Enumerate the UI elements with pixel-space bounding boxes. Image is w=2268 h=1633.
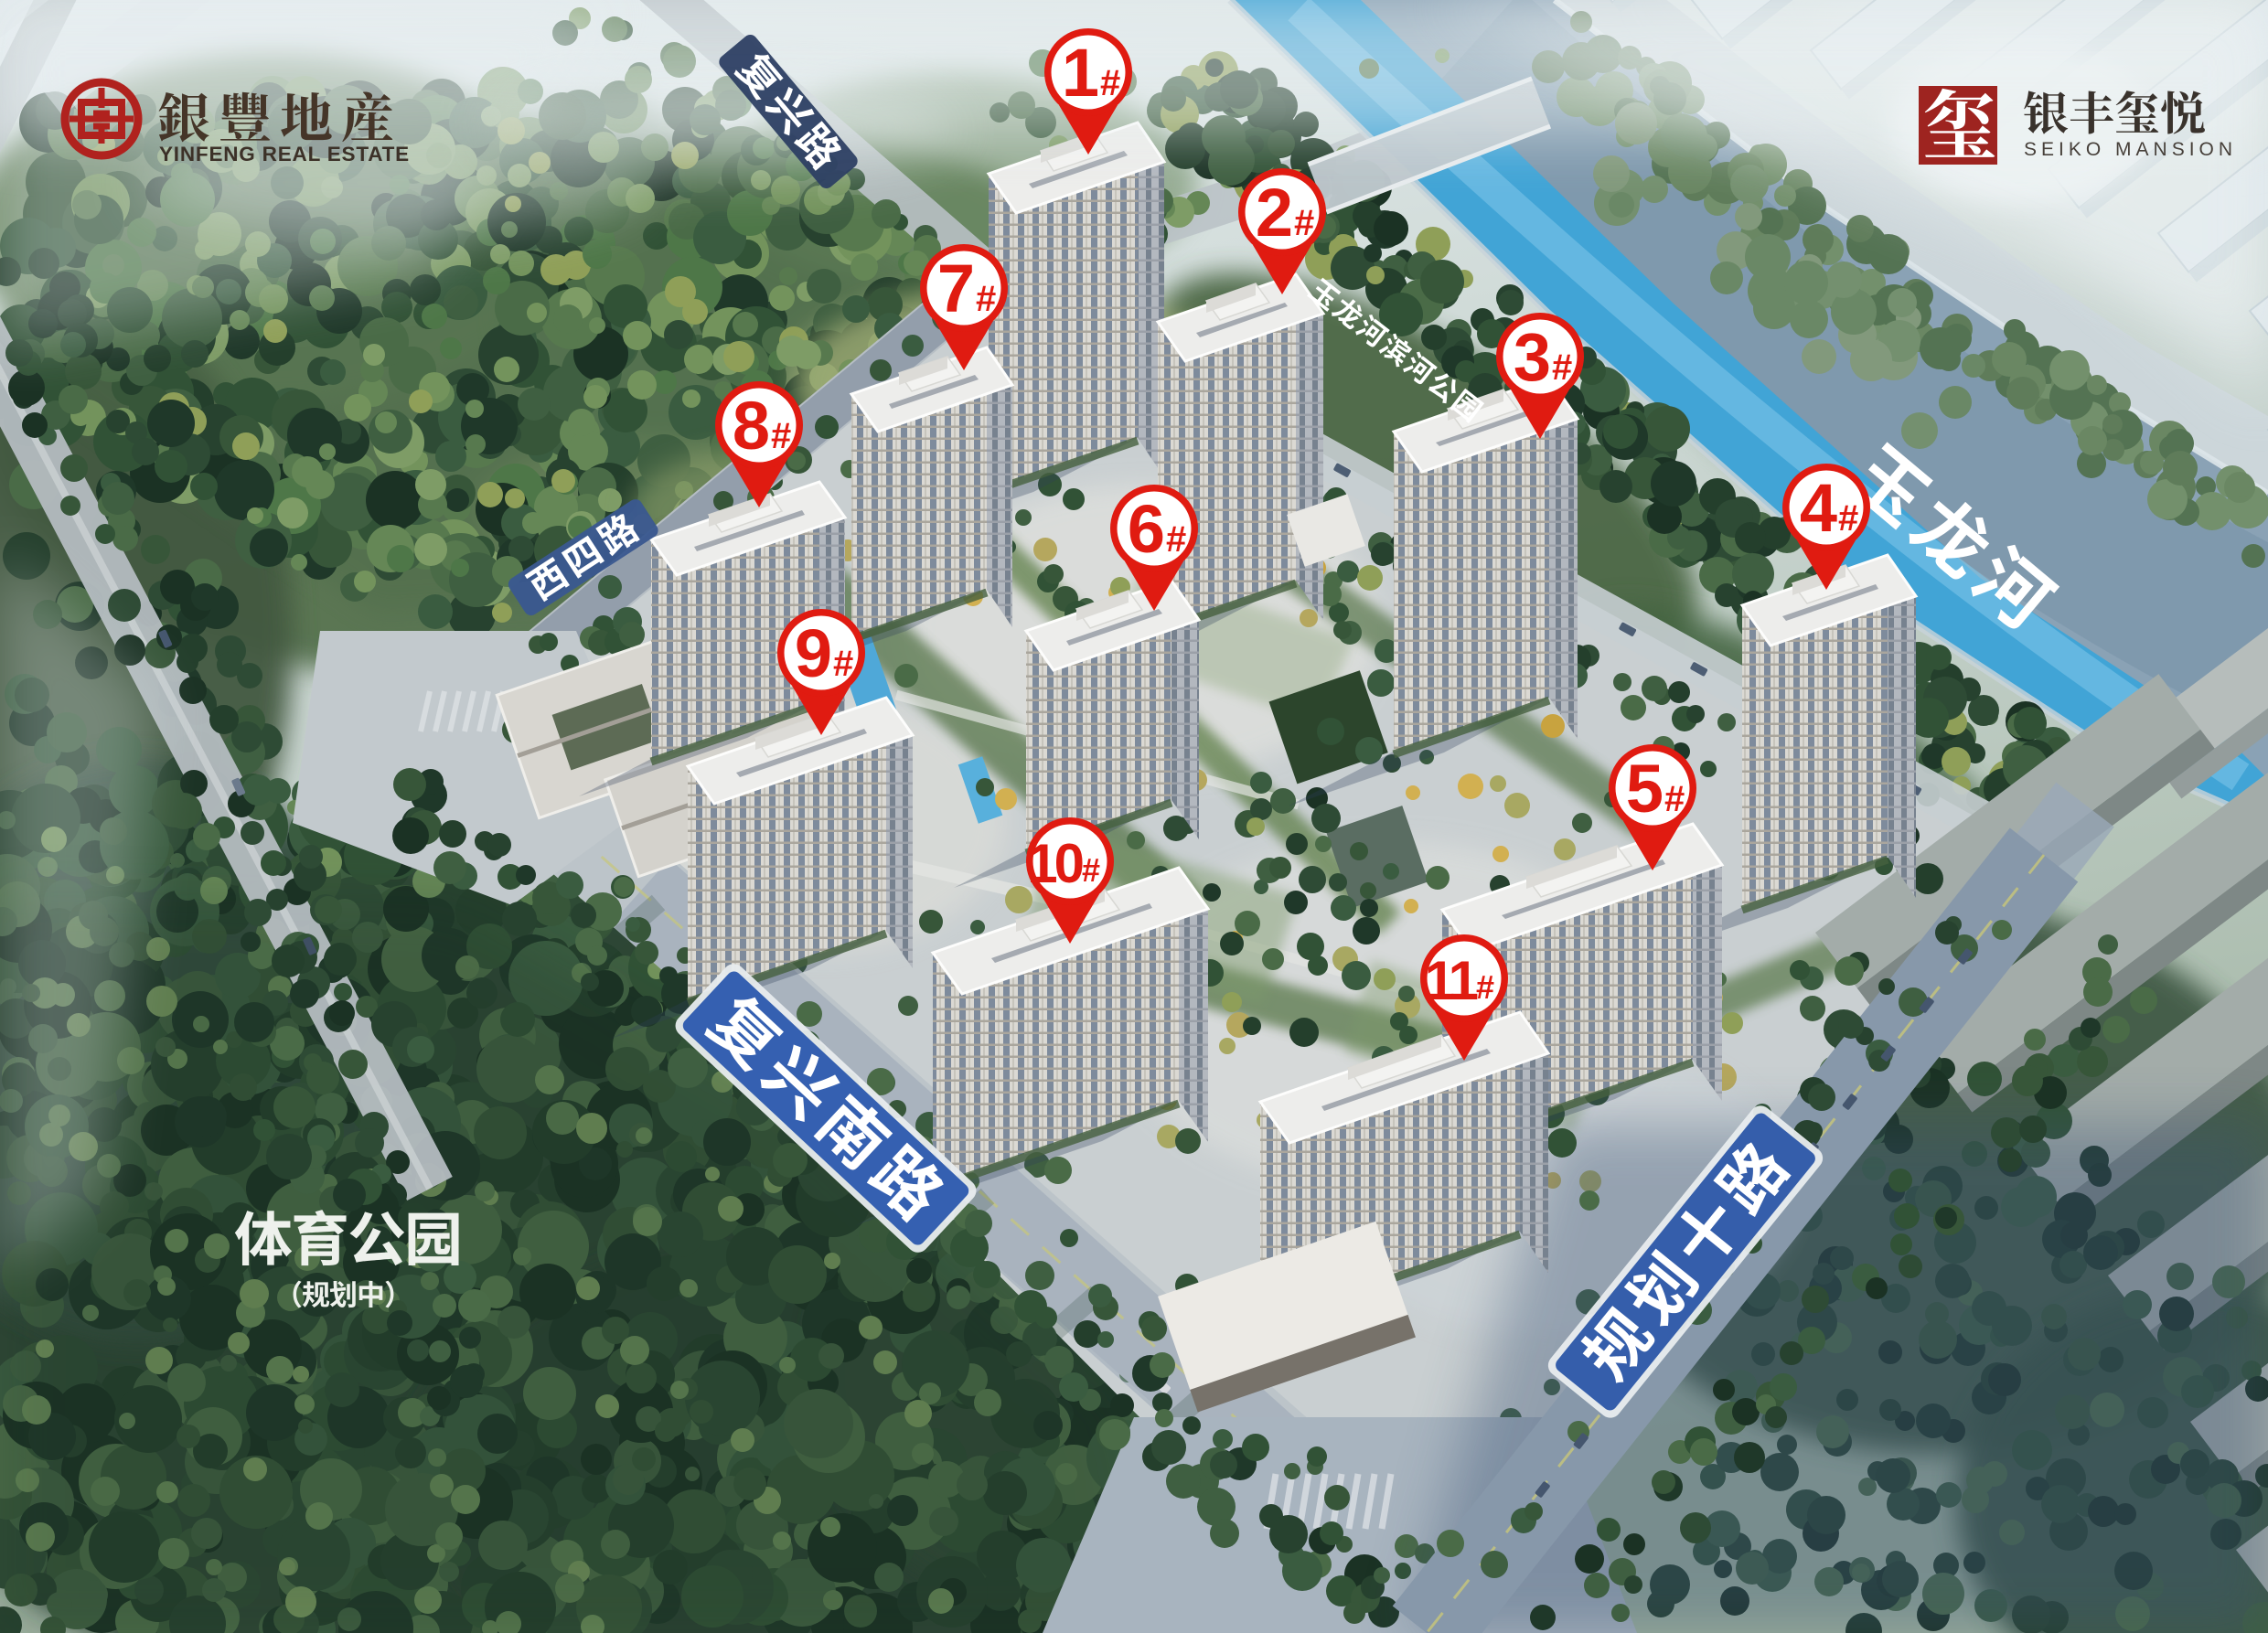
svg-text:#: #	[771, 416, 791, 456]
svg-text:#: #	[1166, 519, 1186, 560]
svg-text:#: #	[833, 644, 853, 684]
svg-text:5: 5	[1626, 751, 1664, 827]
svg-text:8: 8	[733, 388, 770, 464]
svg-text:SEIKO MANSION: SEIKO MANSION	[2024, 139, 2237, 160]
svg-text:4: 4	[1800, 470, 1837, 546]
svg-text:3: 3	[1514, 319, 1551, 395]
svg-text:2: 2	[1256, 175, 1293, 251]
svg-text:11: 11	[1425, 950, 1478, 1011]
svg-text:7: 7	[937, 251, 975, 326]
svg-text:1: 1	[1062, 35, 1099, 111]
svg-text:#: #	[1838, 498, 1858, 539]
svg-text:YINFENG REAL ESTATE: YINFENG REAL ESTATE	[159, 143, 410, 165]
svg-text:#: #	[1476, 968, 1494, 1006]
svg-text:10: 10	[1027, 833, 1082, 894]
svg-text:#: #	[1100, 63, 1120, 103]
svg-text:#: #	[1664, 779, 1685, 819]
svg-text:#: #	[976, 279, 996, 319]
svg-text:#: #	[1082, 851, 1100, 889]
svg-text:#: #	[1552, 347, 1572, 388]
svg-text:9: 9	[795, 615, 832, 691]
svg-text:6: 6	[1128, 491, 1165, 567]
svg-text:#: #	[1294, 203, 1314, 243]
